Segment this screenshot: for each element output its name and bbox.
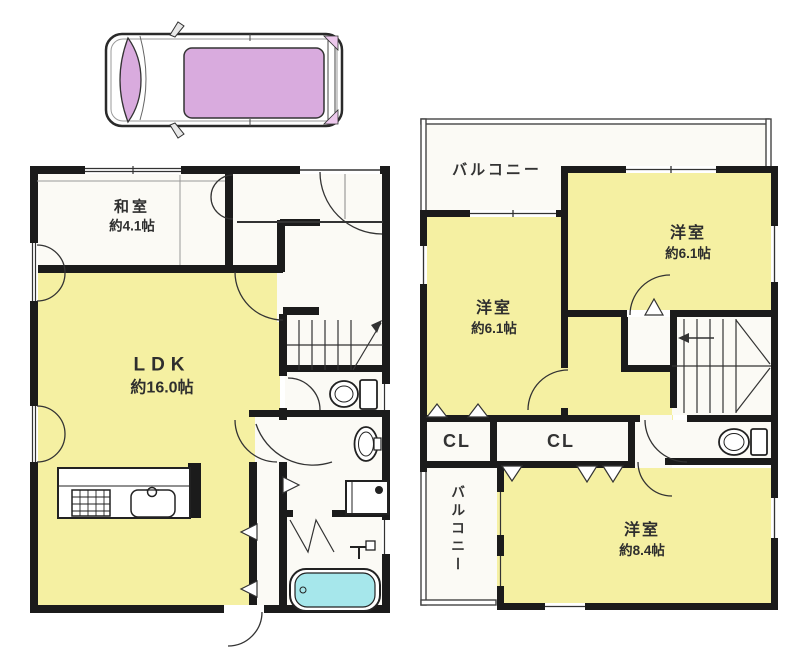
bedroom-left-label: 洋室 約6.1帖: [471, 299, 517, 337]
bedroom-main-label: 洋室 約8.4帖: [619, 521, 665, 559]
stove-icon: [72, 490, 110, 516]
closet-center-label: CL: [547, 430, 575, 454]
bedroom-right-label: 洋室 約6.1帖: [665, 224, 711, 262]
washitsu-size: 約4.1帖: [109, 217, 155, 235]
room-fills-2f: [424, 125, 771, 603]
bathtub-icon: [290, 569, 380, 611]
washing-machine-icon: [346, 481, 388, 514]
kitchen-counter: [58, 468, 190, 518]
car-roof: [184, 48, 324, 118]
bedroom-right-size: 約6.1帖: [665, 245, 711, 263]
first-floor-plan: [30, 166, 390, 646]
toilet-icon-1f: [330, 380, 377, 409]
ldk-label: LDK 約16.0帖: [130, 353, 193, 398]
second-floor-plan: [420, 119, 778, 610]
bedroom-right-name: 洋室: [665, 224, 711, 245]
ldk-name: LDK: [130, 353, 193, 378]
balcony-side-label: バルコニー: [449, 485, 467, 582]
toilet-icon-2f: [719, 429, 767, 455]
balcony-top-label: バルコニー: [452, 161, 542, 182]
bedroom-left-size: 約6.1帖: [471, 320, 517, 338]
washitsu-label: 和室 約4.1帖: [109, 197, 155, 234]
floorplan-drawing: [0, 0, 800, 666]
bedroom-main-name: 洋室: [619, 521, 665, 542]
car-top-view-icon: [106, 22, 342, 138]
back-door-arc: [228, 612, 262, 646]
floorplan-page: 和室 約4.1帖 LDK 約16.0帖 バルコニー 洋室 約6.1帖 洋室 約6…: [0, 0, 800, 666]
washitsu-name: 和室: [109, 197, 155, 217]
sink-icon: [131, 488, 175, 518]
ldk-size: 約16.0帖: [130, 378, 193, 399]
bedroom-main-size: 約8.4帖: [619, 542, 665, 560]
bedroom-left-name: 洋室: [471, 299, 517, 320]
closet-left-label: CL: [443, 430, 471, 454]
ldk-room: [37, 271, 280, 610]
